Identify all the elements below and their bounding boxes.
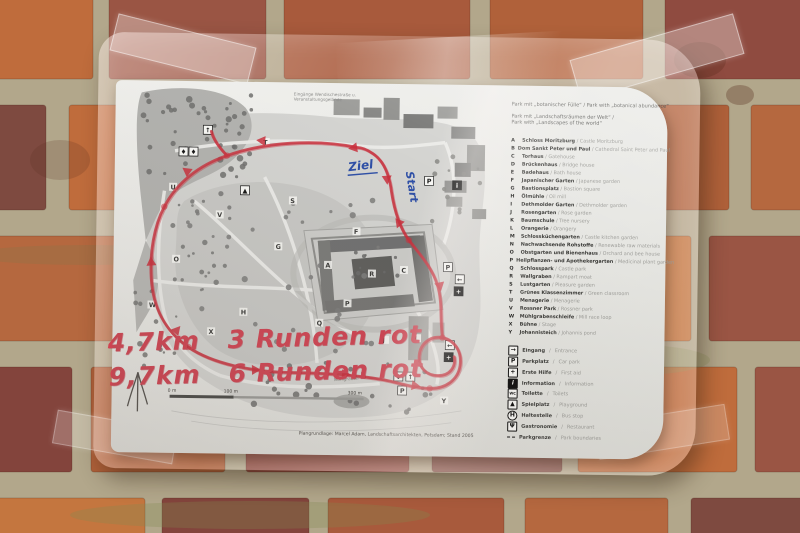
map-icon-box: +	[444, 353, 453, 362]
parking-icon: P	[508, 356, 518, 366]
firstaid-icon: +	[508, 367, 518, 377]
map-letter-O: O	[172, 255, 180, 264]
entrance-icon: →	[508, 346, 518, 356]
svg-text:+: +	[446, 354, 451, 362]
svg-text:V: V	[217, 211, 222, 219]
legend-entry-list: ASchloss Moritzburg / Castle MoritzburgB…	[508, 136, 665, 338]
map-letter-Y: Y	[440, 397, 448, 406]
legend-intro-1: Park mit „botanischer Fülle“ / Park with…	[512, 102, 666, 111]
bus-icon: H	[507, 410, 517, 420]
svg-text:G: G	[276, 243, 281, 251]
svg-text:P: P	[427, 177, 432, 185]
svg-text:↑: ↑	[205, 126, 210, 134]
map-icon-box: P	[398, 386, 407, 395]
svg-text:P: P	[446, 264, 451, 272]
brick	[755, 367, 800, 472]
map-legend: Park mit „botanischer Fülle“ / Park with…	[507, 102, 666, 445]
svg-text:R: R	[369, 270, 374, 278]
restaurant-icon: Ψ	[507, 421, 517, 431]
map-icon-box: i	[453, 181, 462, 190]
map-icon-box: ←	[455, 275, 464, 284]
legend-entry-Y: YJohannisteich / Johannis pond	[508, 328, 662, 338]
park-map-drawing: TSVUGQRACPJLHXWYFO ↑♦♦▲PiP←+←+↓↑P Ziel S…	[111, 80, 508, 457]
map-letter-R: R	[368, 270, 376, 279]
toilets-icon: WC	[508, 389, 518, 399]
svg-text:P: P	[400, 387, 405, 395]
map-letter-S: S	[289, 196, 297, 205]
map-icon-box: P	[443, 263, 452, 272]
legend-symbol-boundary: Parkgrenze / Park boundaries	[507, 432, 661, 445]
svg-text:▲: ▲	[242, 187, 247, 195]
distance-2: 9,7km	[108, 360, 201, 392]
wall-stain	[70, 501, 430, 529]
svg-text:♦: ♦	[181, 148, 187, 156]
map-letter-F: F	[352, 227, 360, 236]
wall-stain	[726, 85, 754, 105]
park-map-paper: TSVUGQRACPJLHXWYFO ↑♦♦▲PiP←+←+↓↑P Ziel S…	[111, 80, 668, 460]
svg-text:A: A	[325, 262, 330, 270]
scale-threehundred: 300 m	[348, 390, 362, 396]
wall-stain	[30, 140, 90, 180]
rounds-2: 6 Runden rot	[228, 354, 423, 388]
rounds-1: 3 Runden rot	[227, 320, 422, 354]
svg-text:i: i	[456, 182, 458, 190]
svg-text:←: ←	[457, 276, 462, 284]
legend-intro-3: Park with „Landscapes of the world“	[511, 120, 665, 129]
map-letter-C: C	[400, 266, 408, 275]
map-icon-box: ♦	[179, 147, 188, 156]
map-icon-box: +	[454, 287, 463, 296]
brick	[525, 498, 668, 533]
svg-text:C: C	[401, 267, 406, 275]
svg-text:+: +	[456, 288, 461, 296]
svg-text:♦: ♦	[191, 148, 197, 156]
map-letter-V: V	[216, 210, 224, 219]
map-letter-G: G	[274, 242, 282, 251]
brick	[709, 236, 800, 341]
info-icon: i	[508, 378, 518, 388]
map-icon-box: ♦	[189, 147, 198, 156]
legend-symbol-list: →Eingang / EntrancePParkplatz / Car park…	[507, 345, 662, 444]
distance-1: 4,7km	[107, 326, 200, 358]
map-letter-A: A	[324, 261, 332, 270]
brick	[751, 105, 800, 210]
map-entrance-note: Eingänge Wendischestraße u. Veranstaltun…	[294, 91, 414, 103]
handwritten-route-info: 4,7km3 Runden rot 9,7km6 Runden rot	[107, 318, 423, 395]
svg-text:O: O	[173, 255, 179, 263]
map-icon-box: ▲	[240, 186, 249, 195]
brick	[0, 0, 93, 79]
svg-text:H: H	[241, 308, 246, 316]
map-letter-P: P	[343, 299, 351, 308]
photo-of-park-map-on-brick-wall: TSVUGQRACPJLHXWYFO ↑♦♦▲PiP←+←+↓↑P Ziel S…	[0, 0, 800, 533]
svg-text:Y: Y	[440, 397, 446, 405]
svg-text:F: F	[354, 228, 358, 236]
svg-text:P: P	[345, 300, 350, 308]
svg-text:S: S	[290, 197, 295, 205]
map-letter-H: H	[239, 308, 247, 317]
map-icon-box: P	[425, 176, 434, 185]
playground-icon: ▲	[507, 400, 517, 410]
brick	[691, 498, 800, 533]
